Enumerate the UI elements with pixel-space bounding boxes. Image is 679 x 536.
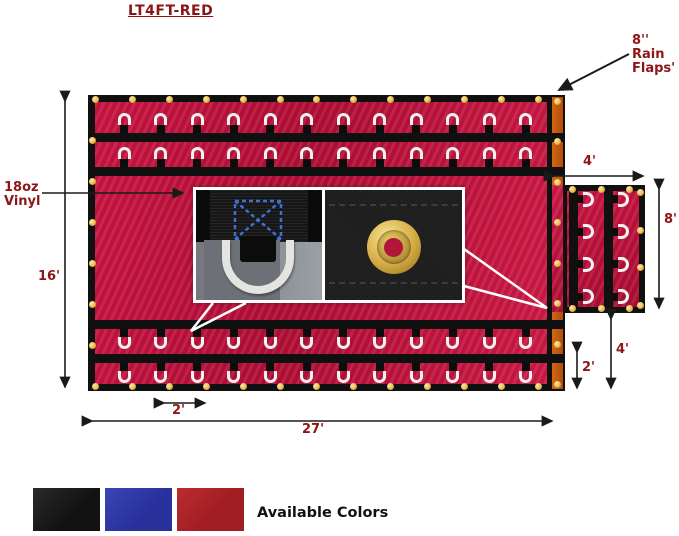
dring-icon — [299, 329, 315, 349]
grommet-column — [637, 189, 644, 309]
dring-icon — [612, 191, 629, 207]
dring-icon — [612, 289, 629, 305]
grommet-icon — [89, 342, 96, 349]
end-flap — [565, 185, 645, 313]
grommet-icon — [498, 383, 505, 390]
grommet-row — [92, 96, 542, 103]
dim-8ft-label: 8' — [664, 213, 677, 227]
dring-icon — [116, 147, 132, 167]
dring-icon — [577, 191, 594, 207]
dring-icon — [335, 147, 351, 167]
dring-icon — [262, 113, 278, 133]
grommet-row — [92, 383, 542, 390]
grommet-icon — [554, 341, 561, 348]
dring-icon — [335, 363, 351, 383]
grommet-detail-photo — [325, 190, 462, 300]
swatch-red — [177, 488, 244, 531]
available-colors-label: Available Colors — [257, 505, 388, 521]
grommet-icon — [92, 383, 99, 390]
dring-icon — [189, 329, 205, 349]
grommet-icon — [277, 383, 284, 390]
grommet-icon — [92, 96, 99, 103]
dring-icon — [518, 113, 534, 133]
grommet-icon — [637, 302, 644, 309]
grommet-icon — [166, 96, 173, 103]
horizontal-strap — [88, 167, 550, 176]
dring-icon — [518, 147, 534, 167]
dring-icon — [372, 147, 388, 167]
grommet-icon — [626, 186, 633, 193]
dring-icon — [262, 363, 278, 383]
grommet-icon — [277, 96, 284, 103]
dring-icon — [262, 147, 278, 167]
grommet-icon — [554, 179, 561, 186]
grommet-icon — [554, 300, 561, 307]
dring-icon — [189, 363, 205, 383]
dim-27ft-label: 27' — [302, 423, 324, 437]
grommet-icon — [387, 96, 394, 103]
grommet-icon — [554, 381, 561, 388]
dring-icon — [612, 224, 629, 240]
dim-2ft-right-label: 2' — [582, 361, 595, 375]
grommet-icon — [554, 260, 561, 267]
grommet-icon — [461, 96, 468, 103]
dring-icon — [518, 363, 534, 383]
dim-2ft-spacing-label: 2' — [172, 404, 185, 418]
dring-icon — [612, 256, 629, 272]
dring-icon — [189, 147, 205, 167]
grommet-icon — [387, 383, 394, 390]
dring-icon — [335, 329, 351, 349]
dring-icon — [408, 329, 424, 349]
dring-icon — [189, 113, 205, 133]
grommet-icon — [129, 383, 136, 390]
grommet-icon — [166, 383, 173, 390]
grommet-icon — [535, 383, 542, 390]
dring-column — [577, 191, 594, 305]
grommet-icon — [240, 383, 247, 390]
grommet-icon — [554, 219, 561, 226]
grommet-icon — [535, 96, 542, 103]
dring-row — [116, 363, 534, 383]
grommet-icon — [240, 96, 247, 103]
dring-icon — [116, 329, 132, 349]
grommet-row — [569, 186, 633, 193]
grommet-icon — [89, 301, 96, 308]
dim-4ft-bottom-label: 4' — [616, 343, 629, 357]
grommet-icon — [313, 96, 320, 103]
grommet-icon — [554, 138, 561, 145]
grommet-icon — [637, 264, 644, 271]
dring-icon — [262, 329, 278, 349]
dring-icon — [518, 329, 534, 349]
dring-icon — [481, 363, 497, 383]
dring-icon — [577, 224, 594, 240]
detail-insets — [193, 187, 465, 303]
dring-icon — [445, 147, 461, 167]
rain-flaps-label: 8'' Rain Flaps' — [632, 34, 675, 76]
grommet-icon — [637, 227, 644, 234]
grommet-icon — [554, 98, 561, 105]
page-title: LT4FT-RED — [128, 3, 213, 19]
grommet-row — [569, 305, 633, 312]
grommet-icon — [350, 383, 357, 390]
grommet-icon — [598, 305, 605, 312]
dring-icon — [372, 113, 388, 133]
grommet-icon — [569, 305, 576, 312]
grommet-icon — [89, 219, 96, 226]
dring-icon — [116, 113, 132, 133]
stitch-line — [329, 204, 458, 206]
dring-icon — [299, 147, 315, 167]
dring-detail-photo — [196, 190, 322, 300]
dring-icon — [153, 363, 169, 383]
grommet-column — [554, 98, 561, 388]
grommet-icon — [637, 189, 644, 196]
dring-icon — [226, 147, 242, 167]
swatch-blue — [105, 488, 172, 531]
material-label: 18oz Vinyl — [4, 181, 40, 209]
grommet-icon — [129, 96, 136, 103]
dring-icon — [481, 113, 497, 133]
dring-icon — [408, 363, 424, 383]
dring-icon — [335, 113, 351, 133]
stitch-line — [329, 282, 458, 284]
grommet-icon — [424, 96, 431, 103]
grommet-icon — [313, 383, 320, 390]
dim-16ft-label: 16' — [38, 270, 60, 284]
grommet-icon — [203, 96, 210, 103]
dring-icon — [372, 363, 388, 383]
dring-icon — [226, 113, 242, 133]
dring-icon — [153, 113, 169, 133]
grommet-column — [89, 137, 96, 349]
dring-icon — [408, 147, 424, 167]
horizontal-strap — [88, 354, 550, 363]
grommet-icon — [626, 305, 633, 312]
grommet-icon — [424, 383, 431, 390]
dring-icon — [445, 363, 461, 383]
grommet-icon — [569, 186, 576, 193]
dring-row — [116, 113, 534, 133]
swatch-black — [33, 488, 100, 531]
grommet-icon — [89, 260, 96, 267]
rain-flap-arrow — [559, 54, 629, 90]
dring-icon — [577, 289, 594, 305]
grommet-icon — [498, 96, 505, 103]
dim-4ft-top-label: 4' — [583, 155, 596, 169]
dring-icon — [481, 147, 497, 167]
grommet-icon — [89, 137, 96, 144]
grommet-icon — [461, 383, 468, 390]
grommet-icon — [89, 178, 96, 185]
webbing-edge — [196, 190, 210, 242]
grommet-icon — [203, 383, 210, 390]
dring-icon — [226, 363, 242, 383]
dring-icon — [445, 329, 461, 349]
webbing-edge — [308, 190, 322, 242]
dring-icon — [445, 113, 461, 133]
dring-row — [116, 329, 534, 349]
dring-icon — [116, 363, 132, 383]
horizontal-strap — [88, 133, 550, 142]
color-swatches — [33, 488, 244, 531]
dring-icon — [481, 329, 497, 349]
rain-flap-strip — [550, 95, 565, 391]
horizontal-strap — [88, 320, 550, 329]
dring-icon — [408, 113, 424, 133]
dring-icon — [299, 113, 315, 133]
grommet-icon — [350, 96, 357, 103]
dring-icon — [372, 329, 388, 349]
product-diagram: LT4FT-RED — [0, 0, 679, 536]
grommet-icon — [598, 186, 605, 193]
dring-icon — [153, 147, 169, 167]
dring-icon — [226, 329, 242, 349]
grommet-large-icon — [367, 220, 421, 274]
dring-icon — [577, 256, 594, 272]
dring-icon — [299, 363, 315, 383]
dring-column — [612, 191, 629, 305]
dring-icon — [153, 329, 169, 349]
dring-row — [116, 147, 534, 167]
